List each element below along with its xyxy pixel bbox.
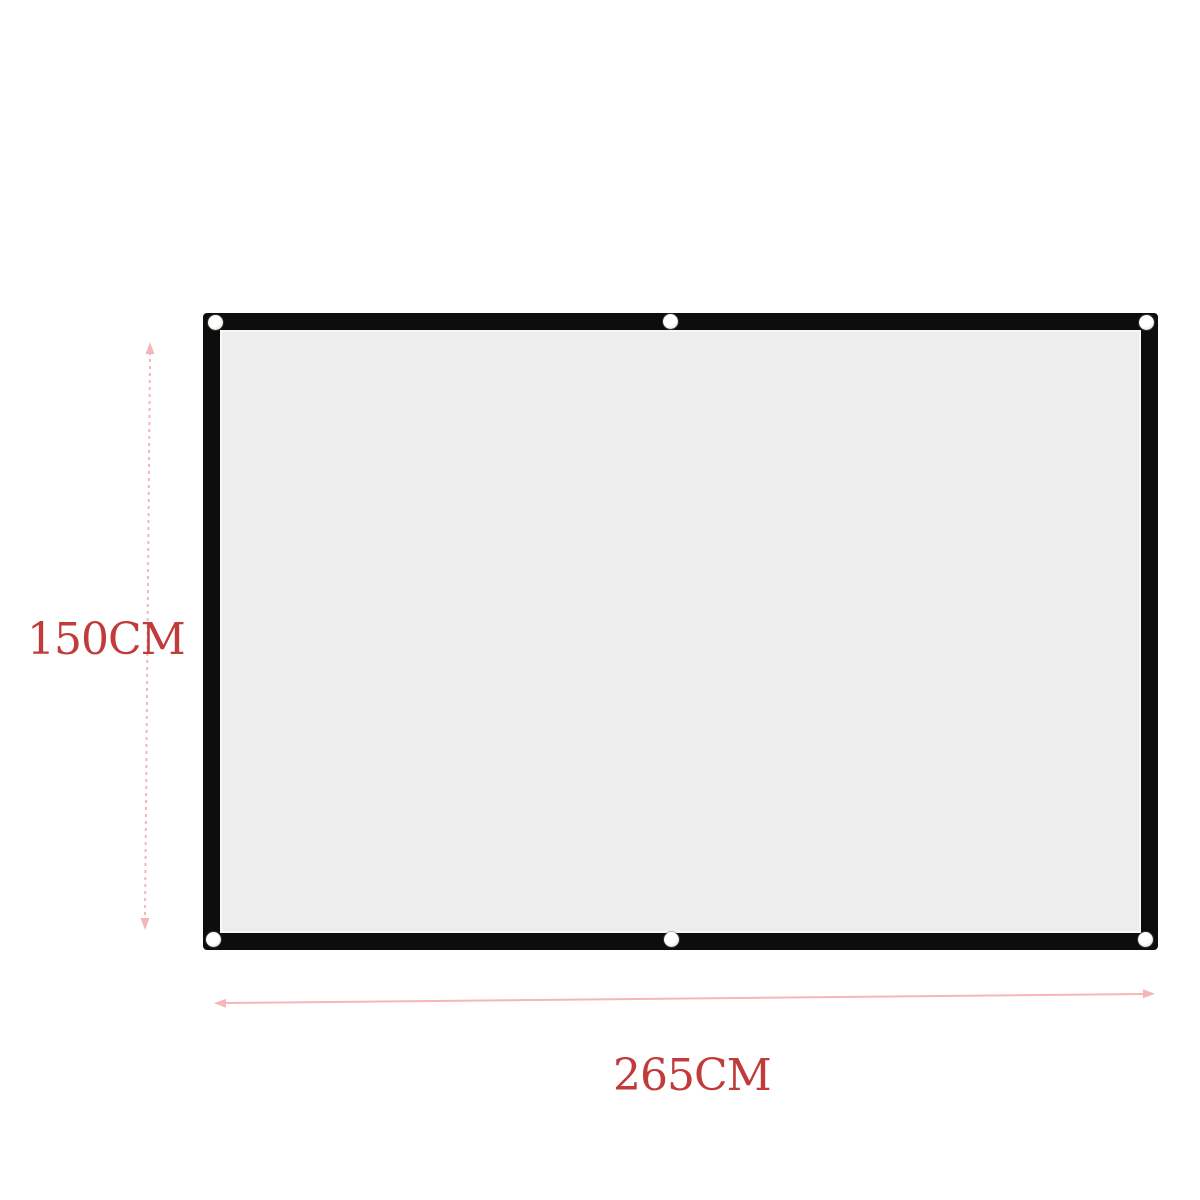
screen-surface <box>220 330 1141 933</box>
width-dimension-arrow-icon <box>212 984 1157 1010</box>
grommet-top-center-icon <box>663 314 678 329</box>
projector-screen-frame <box>203 313 1158 950</box>
grommet-bottom-right-icon <box>1138 932 1153 947</box>
grommet-top-left-icon <box>208 315 223 330</box>
product-image: 150CM 265CM <box>0 0 1200 1200</box>
grommet-bottom-center-icon <box>664 932 679 947</box>
grommet-top-right-icon <box>1139 315 1154 330</box>
height-dimension-label: 150CM <box>27 618 185 662</box>
width-dimension-label: 265CM <box>613 1054 771 1098</box>
grommet-bottom-left-icon <box>206 932 221 947</box>
